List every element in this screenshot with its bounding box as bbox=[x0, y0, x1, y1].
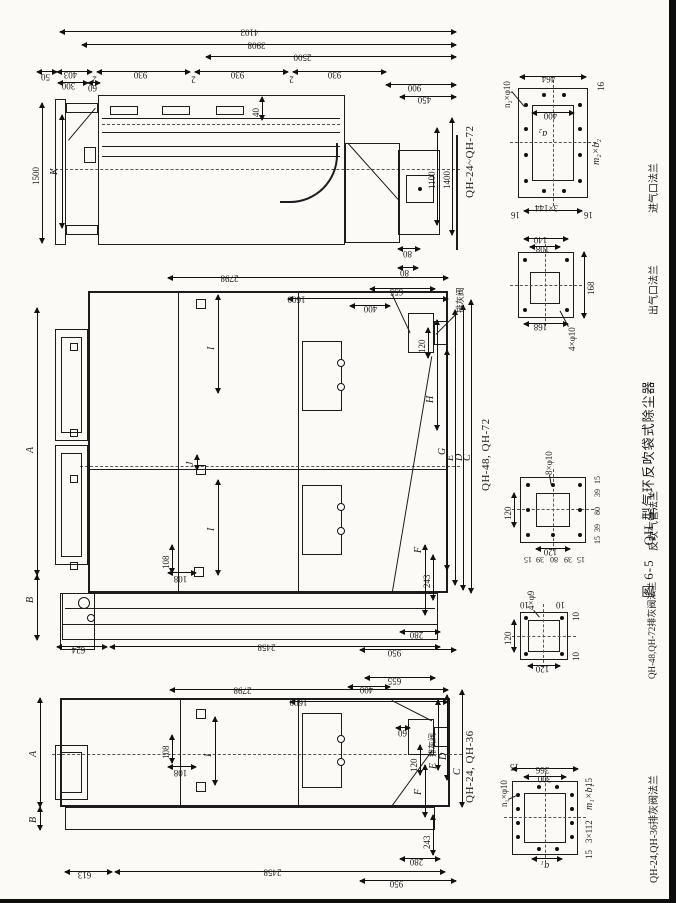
bolt-hole bbox=[562, 93, 566, 97]
bolt-hole bbox=[578, 103, 582, 107]
flange-inlet: 464 400 3×144 16 16 16 a₂ n₂×φ10 m₂×b₂ 进… bbox=[0, 0, 676, 903]
bolt-hole bbox=[578, 179, 582, 183]
figure-page: 4103 3908 2500 50 403 2 930 2 930 2 930 … bbox=[0, 0, 676, 903]
centerline bbox=[553, 80, 554, 206]
dim-m2b2: m₂×b₂ bbox=[592, 139, 602, 165]
dim-16: 16 bbox=[584, 210, 593, 219]
dim-3x144: 3×144 bbox=[535, 203, 558, 212]
flange-label-inlet: 进气口法兰 bbox=[645, 163, 660, 213]
scan-edge bbox=[0, 899, 676, 903]
bolt-hole bbox=[578, 153, 582, 157]
scan-edge bbox=[669, 0, 676, 903]
bolt-hole bbox=[524, 179, 528, 183]
centerline bbox=[510, 142, 596, 143]
bolt-hole bbox=[524, 127, 528, 131]
dim-16: 16 bbox=[511, 210, 520, 219]
bolt-hole bbox=[562, 189, 566, 193]
dim-464: 464 bbox=[542, 74, 556, 83]
bolt-hole bbox=[542, 189, 546, 193]
bolt-hole bbox=[578, 127, 582, 131]
bolt-hole bbox=[524, 153, 528, 157]
dim-a2: a₂ bbox=[539, 128, 547, 138]
figure-caption: 图 6-5 QH 型气环反吹袋式除尘器 bbox=[638, 380, 657, 598]
dim-16: 16 bbox=[597, 82, 606, 91]
dim-400: 400 bbox=[544, 111, 558, 120]
dim-n2-phi10: n₂×φ10 bbox=[503, 81, 512, 108]
drawing-sheet: 4103 3908 2500 50 403 2 930 2 930 2 930 … bbox=[0, 0, 676, 903]
bolt-hole bbox=[542, 93, 546, 97]
